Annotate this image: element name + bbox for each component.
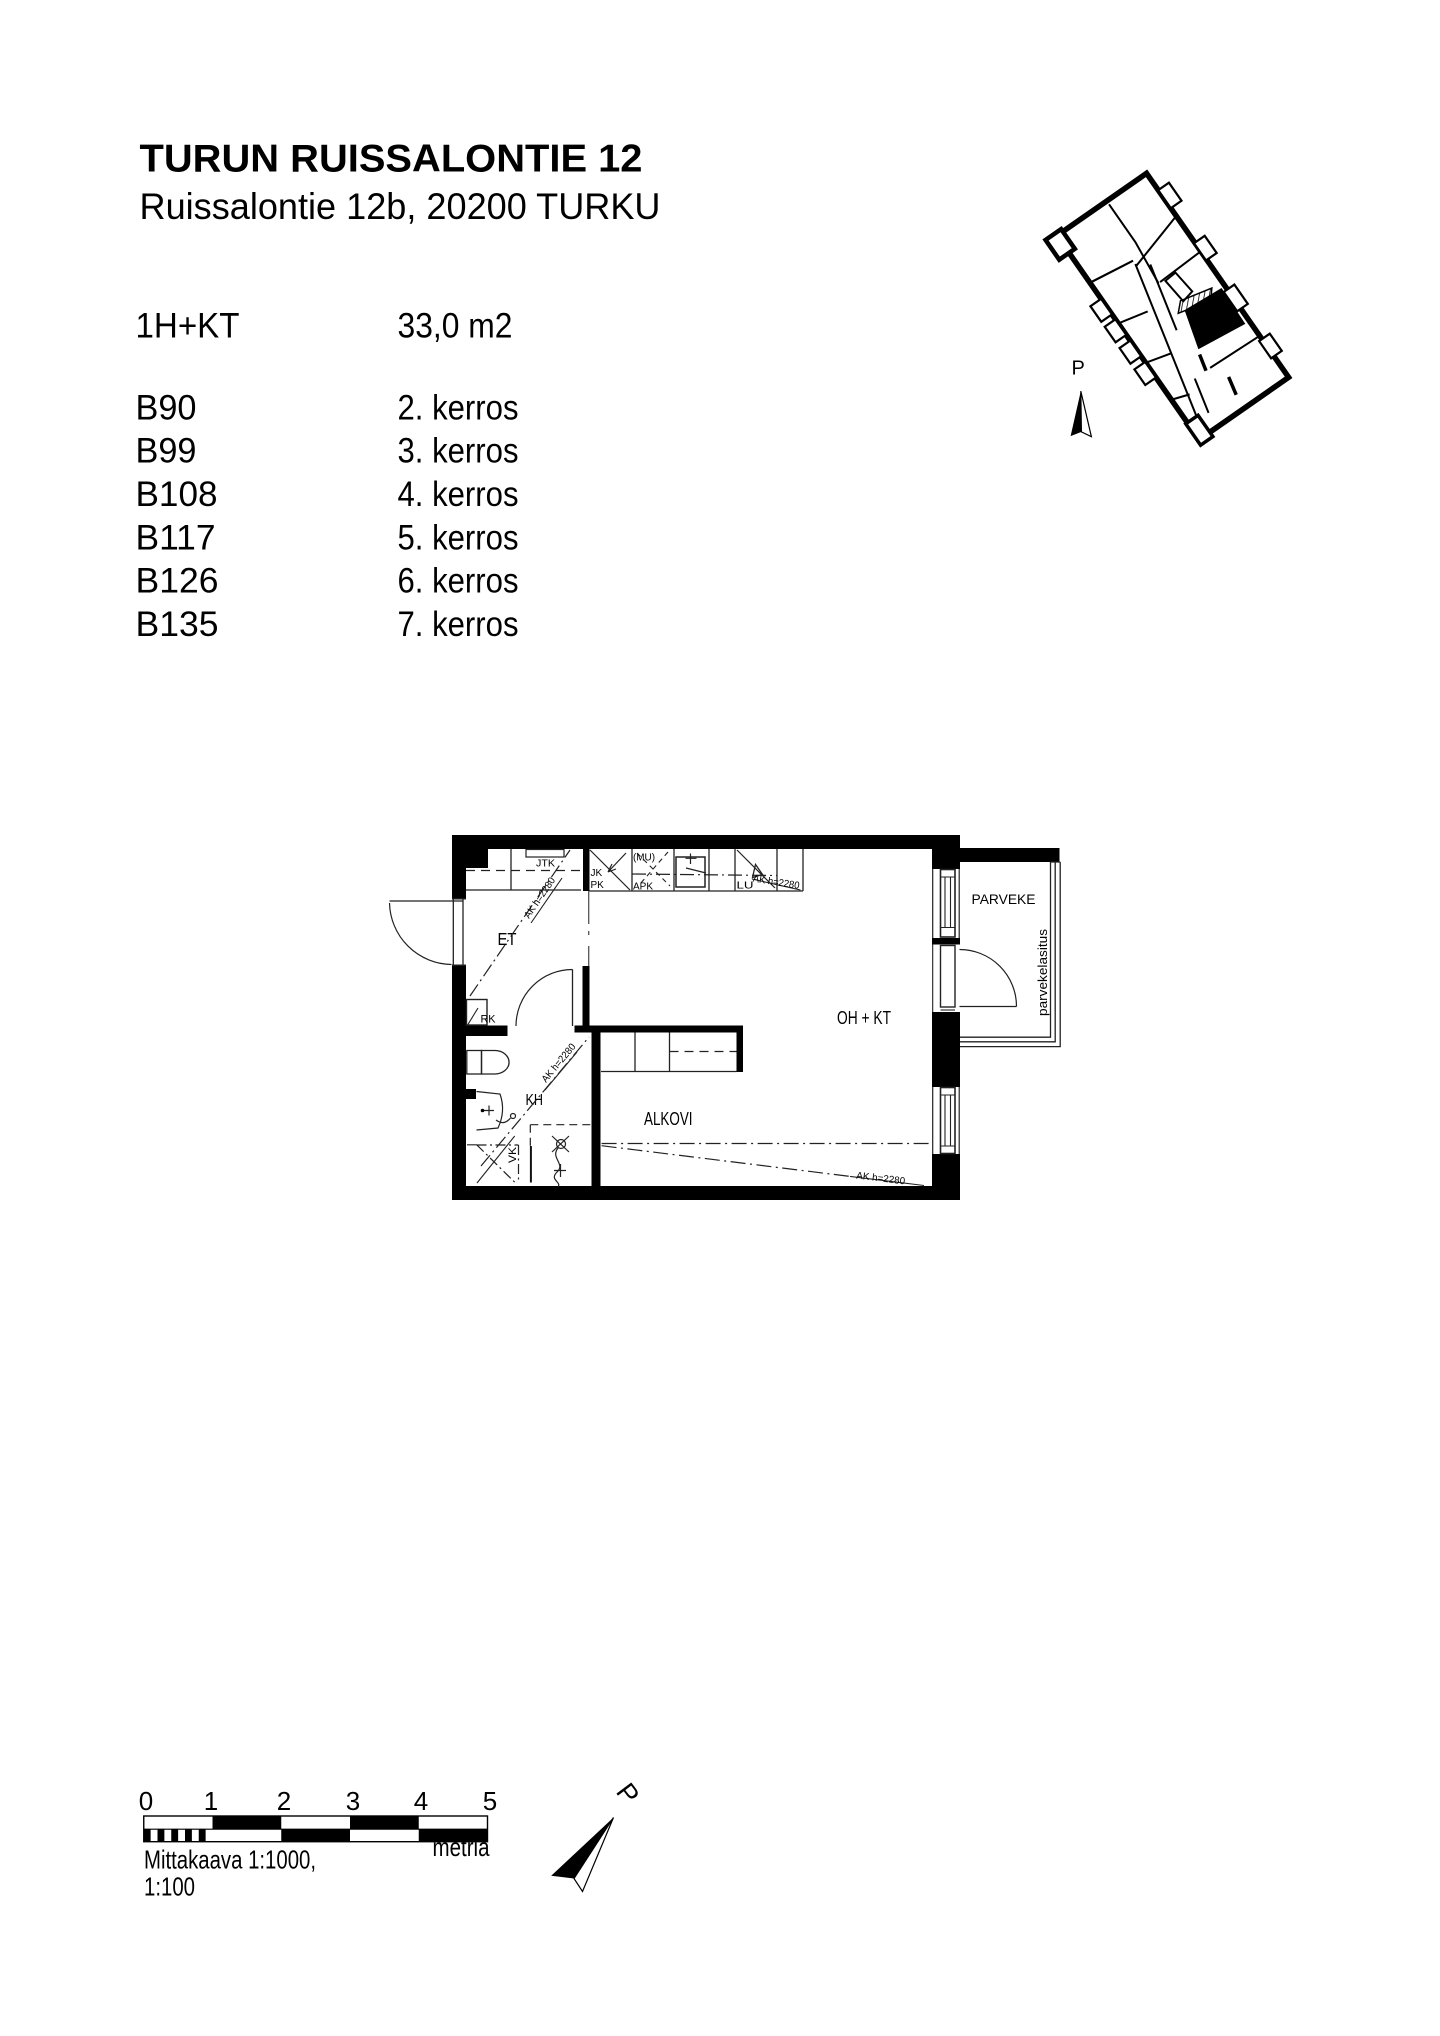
- svg-text:ALKOVI: ALKOVI: [644, 1109, 693, 1129]
- svg-text:3: 3: [346, 1786, 360, 1816]
- svg-text:B117: B117: [136, 517, 216, 557]
- svg-text:Mittakaava 1:1000,: Mittakaava 1:1000,: [144, 1845, 316, 1875]
- svg-text:2. kerros: 2. kerros: [398, 387, 519, 427]
- svg-text:VK: VK: [507, 1146, 519, 1163]
- svg-text:RK: RK: [481, 1014, 497, 1026]
- svg-text:1: 1: [204, 1786, 218, 1816]
- svg-text:(MU): (MU): [633, 853, 655, 864]
- svg-text:B99: B99: [136, 431, 197, 471]
- svg-text:Ruissalontie 12b, 20200 TURKU: Ruissalontie 12b, 20200 TURKU: [140, 185, 661, 227]
- svg-text:TURUN RUISSALONTIE 12: TURUN RUISSALONTIE 12: [140, 138, 643, 181]
- svg-text:B126: B126: [136, 561, 219, 601]
- svg-text:1H+KT: 1H+KT: [136, 305, 240, 345]
- svg-text:LU: LU: [737, 881, 754, 892]
- svg-text:5: 5: [483, 1786, 497, 1816]
- svg-text:metriä: metriä: [433, 1832, 490, 1862]
- svg-text:APK: APK: [633, 882, 653, 893]
- svg-text:2: 2: [277, 1786, 291, 1816]
- svg-text:6. kerros: 6. kerros: [398, 561, 519, 601]
- svg-text:OH + KT: OH + KT: [837, 1008, 891, 1028]
- svg-text:5. kerros: 5. kerros: [398, 517, 519, 557]
- svg-text:1:100: 1:100: [144, 1872, 195, 1902]
- svg-text:P: P: [1072, 358, 1085, 380]
- svg-text:B135: B135: [136, 604, 219, 644]
- svg-text:33,0 m2: 33,0 m2: [398, 305, 513, 345]
- svg-text:4. kerros: 4. kerros: [398, 474, 519, 514]
- svg-text:7. kerros: 7. kerros: [398, 604, 519, 644]
- svg-text:B90: B90: [136, 387, 197, 427]
- svg-text:B108: B108: [136, 474, 218, 514]
- svg-text:JTK: JTK: [536, 859, 555, 870]
- svg-text:0: 0: [139, 1786, 153, 1816]
- svg-text:KH: KH: [526, 1092, 544, 1109]
- svg-text:3. kerros: 3. kerros: [398, 431, 519, 471]
- svg-text:JK: JK: [591, 868, 603, 879]
- svg-text:PK: PK: [591, 880, 605, 891]
- svg-text:parvekelasitus: parvekelasitus: [1036, 929, 1050, 1016]
- svg-text:PARVEKE: PARVEKE: [972, 891, 1036, 907]
- svg-text:4: 4: [414, 1786, 428, 1816]
